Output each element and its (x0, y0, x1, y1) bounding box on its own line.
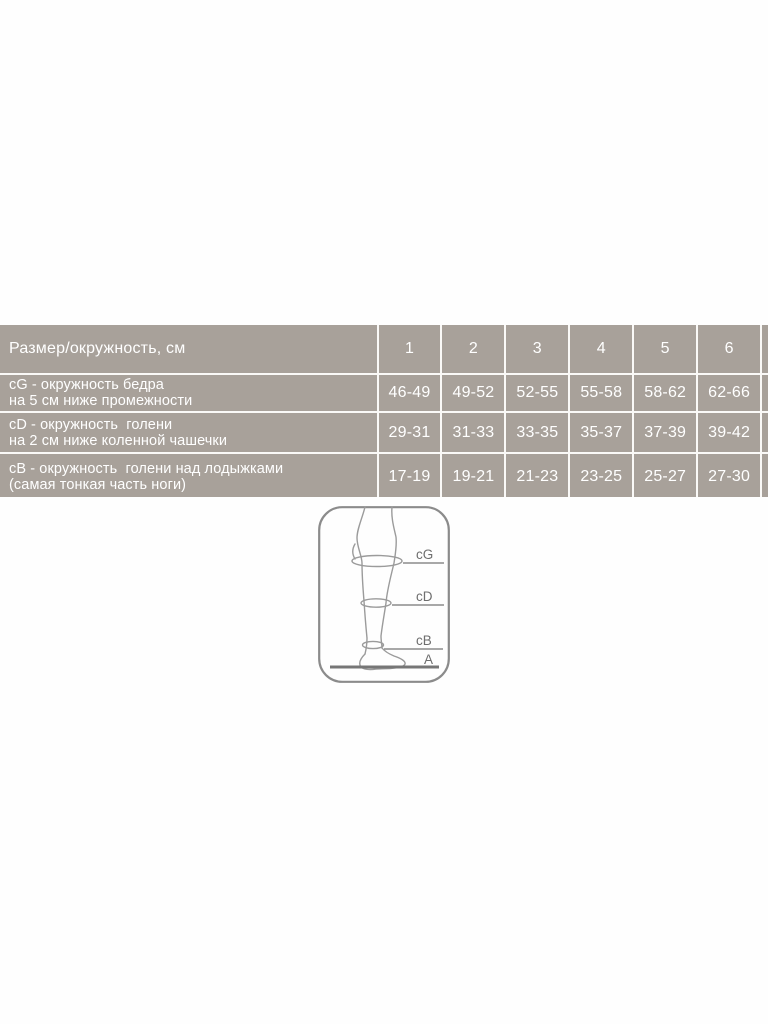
diagram-label-a: A (424, 652, 433, 667)
table-cell: 46-49 (377, 375, 441, 411)
table-cell (760, 454, 768, 497)
row-label-cd: cD - окружность голени на 2 см ниже коле… (0, 413, 377, 452)
table-cell: 33-35 (504, 413, 568, 452)
diagram-label-cg: cG (416, 547, 433, 562)
table-row-cd: cD - окружность голени на 2 см ниже коле… (0, 413, 768, 454)
size-column-header-3: 3 (504, 325, 568, 373)
row-label-cg: cG - окружность бедра на 5 см ниже проме… (0, 375, 377, 411)
table-cell: 39-42 (696, 413, 760, 452)
table-cell: 37-39 (632, 413, 696, 452)
size-table: Размер/окружность, см 1 2 3 4 5 6 7 cG -… (0, 325, 768, 497)
leg-measurement-diagram: cG cD cB A (318, 506, 450, 683)
table-cell: 27-30 (696, 454, 760, 497)
table-cell (760, 413, 768, 452)
row-label-cb: cB - окружность голени над лодыжками (са… (0, 454, 377, 497)
diagram-label-cb: cB (416, 633, 432, 648)
table-cell: 19-21 (440, 454, 504, 497)
size-column-header-4: 4 (568, 325, 632, 373)
table-cell: 55-58 (568, 375, 632, 411)
table-row-cb: cB - окружность голени над лодыжками (са… (0, 454, 768, 497)
table-cell: 17-19 (377, 454, 441, 497)
diagram-label-cd: cD (416, 589, 433, 604)
size-column-header-7: 7 (760, 325, 768, 373)
size-column-header-6: 6 (696, 325, 760, 373)
table-cell: 62-66 (696, 375, 760, 411)
table-cell: 21-23 (504, 454, 568, 497)
table-cell: 35-37 (568, 413, 632, 452)
leg-diagram-svg: cG cD cB A (318, 506, 450, 683)
table-cell (760, 375, 768, 411)
size-column-header-2: 2 (440, 325, 504, 373)
table-cell: 29-31 (377, 413, 441, 452)
table-cell: 23-25 (568, 454, 632, 497)
table-cell: 31-33 (440, 413, 504, 452)
product-size-card: Размер/окружность, см 1 2 3 4 5 6 7 cG -… (0, 0, 768, 1024)
table-cell: 25-27 (632, 454, 696, 497)
table-cell: 58-62 (632, 375, 696, 411)
size-column-header-1: 1 (377, 325, 441, 373)
table-header-row: Размер/окружность, см 1 2 3 4 5 6 7 (0, 325, 768, 375)
table-corner-label: Размер/окружность, см (9, 340, 377, 358)
table-cell: 52-55 (504, 375, 568, 411)
size-column-header-5: 5 (632, 325, 696, 373)
table-cell: 49-52 (440, 375, 504, 411)
table-row-cg: cG - окружность бедра на 5 см ниже проме… (0, 375, 768, 413)
